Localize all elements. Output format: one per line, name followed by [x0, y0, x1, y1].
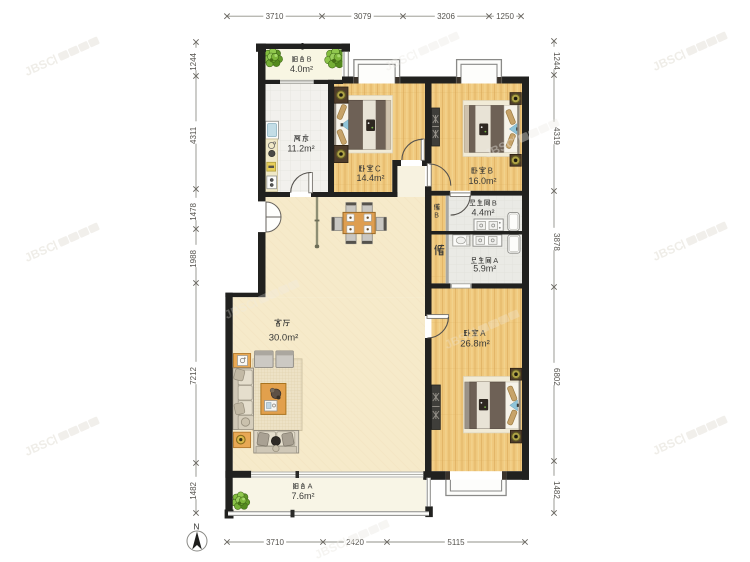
svg-text:3079: 3079 [354, 12, 372, 21]
svg-text:30.0m²: 30.0m² [269, 332, 299, 343]
svg-text:3710: 3710 [266, 12, 284, 21]
svg-text:14.4m²: 14.4m² [356, 173, 384, 183]
svg-text:1482: 1482 [552, 481, 561, 499]
svg-text:16.0m²: 16.0m² [468, 176, 496, 186]
svg-text:4311: 4311 [189, 126, 198, 144]
svg-text:B: B [434, 213, 439, 220]
svg-text:7212: 7212 [189, 366, 198, 384]
svg-text:N: N [193, 522, 199, 532]
svg-text:3206: 3206 [437, 12, 455, 21]
svg-text:4319: 4319 [552, 127, 561, 145]
svg-text:C: C [375, 164, 381, 173]
svg-text:4.4m²: 4.4m² [471, 208, 494, 218]
svg-text:5115: 5115 [447, 538, 465, 547]
svg-text:7.6m²: 7.6m² [291, 491, 314, 501]
svg-text:1250: 1250 [496, 12, 514, 21]
svg-text:1244: 1244 [189, 52, 198, 70]
svg-text:A: A [308, 482, 313, 491]
svg-text:3710: 3710 [266, 538, 284, 547]
svg-text:11.2m²: 11.2m² [287, 144, 314, 154]
svg-text:B: B [307, 55, 312, 64]
svg-text:5.9m²: 5.9m² [473, 264, 496, 274]
svg-text:1482: 1482 [189, 481, 198, 499]
svg-text:6802: 6802 [552, 368, 561, 386]
svg-text:1988: 1988 [189, 249, 198, 267]
svg-text:1244: 1244 [552, 52, 561, 70]
svg-text:3878: 3878 [552, 233, 561, 251]
svg-text:1478: 1478 [189, 202, 198, 220]
svg-text:B: B [492, 199, 497, 208]
svg-text:4.0m²: 4.0m² [290, 64, 313, 74]
svg-text:B: B [488, 166, 493, 175]
